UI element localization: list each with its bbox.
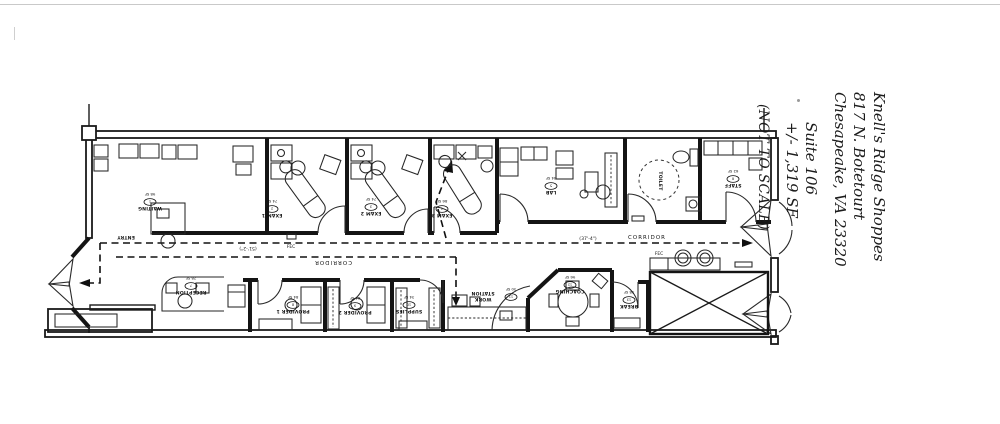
label-break: BREAK 13 38 SF (620, 290, 639, 309)
label-waiting: WAITING 1 98 SF (138, 192, 162, 211)
left-entry-double-door-icon (49, 259, 73, 306)
svg-text:BREAK: BREAK (620, 303, 639, 309)
svg-text:EXAM 3: EXAM 3 (432, 212, 453, 218)
label-entry: ENTRY (117, 234, 135, 240)
dimension-37-4: (37'-4") (579, 236, 597, 242)
svg-text:PROVIDER 1: PROVIDER 1 (276, 308, 309, 314)
svg-text:8: 8 (292, 302, 294, 306)
egress-path (79, 152, 753, 306)
svg-text:PROVIDER 2: PROVIDER 2 (338, 309, 371, 315)
svg-text:WAITING: WAITING (138, 205, 162, 211)
label-exam1: EXAM 1 2 74 SF (262, 199, 283, 218)
break-furniture (614, 318, 640, 328)
label-fec-left: FEC (287, 244, 295, 250)
svg-text:10: 10 (407, 302, 411, 306)
svg-text:84 SF: 84 SF (546, 176, 557, 181)
title-address: 817 N. Botetourt (849, 92, 869, 307)
svg-text:CORRIDOR: CORRIDOR (314, 259, 352, 265)
label-coaching: COACHING 12 96 SF (556, 275, 585, 294)
svg-text:EXAM 2: EXAM 2 (361, 210, 382, 216)
svg-text:3: 3 (370, 204, 372, 208)
title-square-footage: +/- 1,319 SF (782, 92, 802, 307)
svg-text:1: 1 (149, 199, 151, 203)
svg-text:5: 5 (550, 183, 552, 187)
title-city-state-zip: Chesapeake, VA 23320 (830, 92, 850, 307)
svg-text:WORK: WORK (474, 296, 491, 302)
label-exam3: EXAM 3 4 86 SF (432, 199, 453, 218)
svg-text:62 SF: 62 SF (728, 169, 739, 174)
svg-text:98 SF: 98 SF (145, 192, 156, 197)
svg-text:7: 7 (190, 283, 192, 287)
floor-plan-scan-page: WAITING 1 98 SF EXAM 1 2 74 SF EXAM 2 3 … (0, 0, 1000, 424)
svg-text:74 SF: 74 SF (366, 197, 377, 202)
toilet-fixtures (632, 149, 700, 221)
svg-text:2: 2 (271, 206, 273, 210)
svg-text:STAFF: STAFF (725, 182, 742, 188)
svg-text:4: 4 (441, 206, 443, 210)
svg-text:TOILET: TOILET (657, 171, 663, 191)
label-staff: STAFF 6 62 SF (725, 169, 742, 188)
title-block: Knell's Ridge Shoppes 817 N. Botetourt C… (788, 92, 888, 307)
svg-text:12: 12 (568, 282, 572, 286)
svg-text:86 SF: 86 SF (437, 199, 448, 204)
svg-text:11: 11 (509, 294, 513, 298)
title-suite: Suite 106 (801, 92, 821, 307)
svg-text:ENTRY: ENTRY (117, 234, 135, 240)
label-corridor-right: CORRIDOR (628, 235, 666, 241)
svg-text:34 SF: 34 SF (404, 295, 415, 300)
svg-text:STATION: STATION (471, 290, 494, 296)
exam2-furniture (351, 145, 423, 221)
dimension-51-2: (51'-2") (239, 245, 257, 251)
label-lab: LAB 5 84 SF (545, 176, 557, 195)
svg-text:SUPPLIES: SUPPLIES (396, 308, 422, 314)
exam3-furniture (434, 145, 493, 217)
label-toilet: TOILET (657, 171, 663, 191)
svg-text:84 SF: 84 SF (288, 295, 299, 300)
svg-text:COACHING: COACHING (556, 288, 585, 294)
svg-text:74 SF: 74 SF (267, 199, 278, 204)
coaching-table (549, 273, 608, 326)
exam1-furniture (271, 145, 341, 221)
title-project-name: Knell's Ridge Shoppes (869, 92, 889, 307)
label-fec-right: FEC (655, 251, 663, 257)
svg-text:EXAM 1: EXAM 1 (262, 212, 283, 218)
svg-text:LAB: LAB (545, 189, 556, 195)
svg-text:38 SF: 38 SF (624, 290, 635, 295)
label-supplies: SUPPLIES 10 34 SF (396, 295, 422, 314)
svg-text:78 SF: 78 SF (186, 276, 197, 281)
svg-text:13: 13 (627, 297, 631, 301)
svg-text:9: 9 (354, 303, 356, 307)
svg-text:96 SF: 96 SF (565, 275, 576, 280)
title-not-to-scale: (NOT TO SCALE) (754, 92, 772, 307)
exterior-planter (48, 305, 155, 332)
svg-text:6: 6 (732, 176, 734, 180)
lab-furniture (500, 147, 617, 207)
label-corridor-left: CORRIDOR (314, 259, 352, 265)
excluded-area-x-box (650, 250, 768, 334)
svg-text:(51'-2"): (51'-2") (239, 245, 257, 251)
svg-text:84 SF: 84 SF (350, 296, 361, 301)
label-work-station: WORK STATION 11 30 SF (471, 287, 517, 302)
svg-text:RECEPTION: RECEPTION (176, 289, 207, 295)
svg-text:30 SF: 30 SF (506, 287, 517, 292)
label-reception: RECEPTION 7 78 SF (176, 276, 207, 295)
